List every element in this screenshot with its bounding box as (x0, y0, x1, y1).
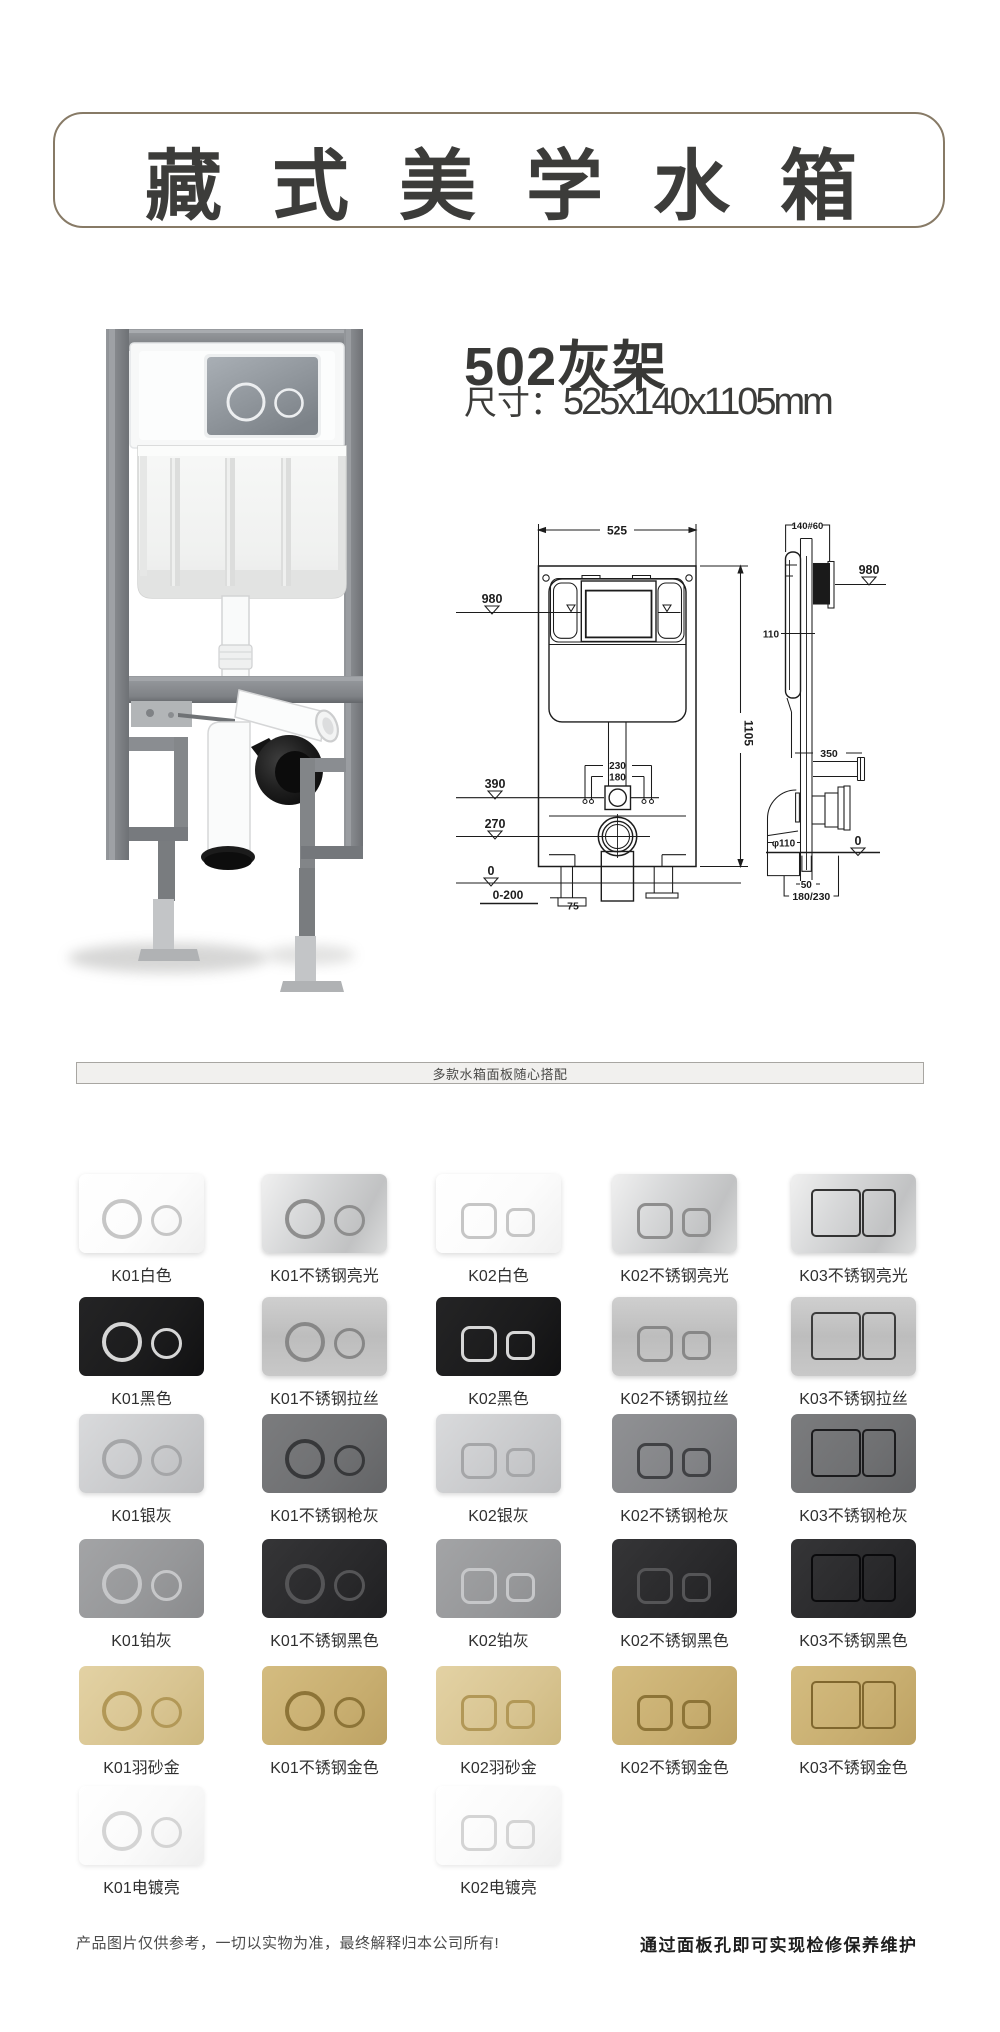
svg-text:φ110: φ110 (772, 839, 796, 850)
svg-text:0-200: 0-200 (493, 888, 524, 902)
svg-text:50: 50 (801, 880, 813, 891)
svg-text:350: 350 (820, 748, 838, 760)
svg-text:180/230: 180/230 (792, 891, 830, 903)
svg-text:270: 270 (485, 817, 506, 831)
svg-text:0: 0 (855, 834, 862, 848)
svg-text:525: 525 (607, 524, 627, 538)
svg-text:1105: 1105 (742, 720, 756, 746)
svg-text:980: 980 (482, 592, 503, 606)
svg-text:980: 980 (859, 563, 880, 577)
svg-text:390: 390 (485, 777, 506, 791)
svg-text:180: 180 (609, 773, 626, 784)
svg-text:230: 230 (609, 761, 626, 772)
svg-text:0: 0 (488, 864, 495, 878)
svg-text:75: 75 (567, 901, 579, 913)
svg-text:110: 110 (763, 630, 780, 641)
svg-text:140#60: 140#60 (792, 521, 824, 532)
